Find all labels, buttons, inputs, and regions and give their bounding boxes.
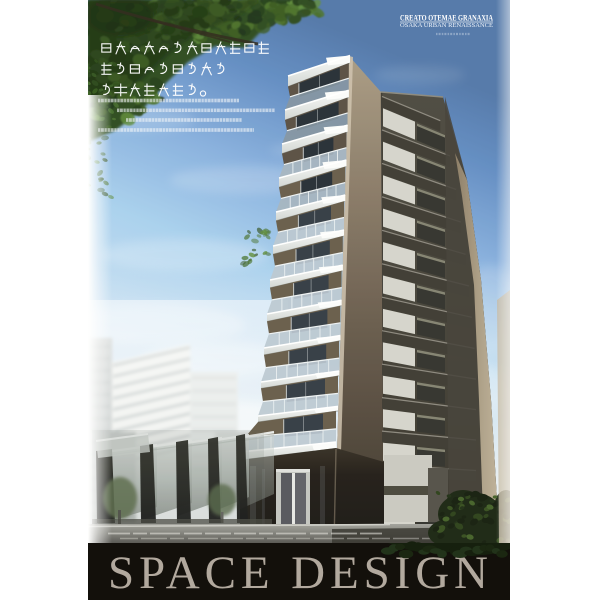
- svg-text:OSAKA URBAN RENAISSANCE: OSAKA URBAN RENAISSANCE: [400, 22, 493, 29]
- svg-text:SPACE DESIGN: SPACE DESIGN: [108, 547, 493, 599]
